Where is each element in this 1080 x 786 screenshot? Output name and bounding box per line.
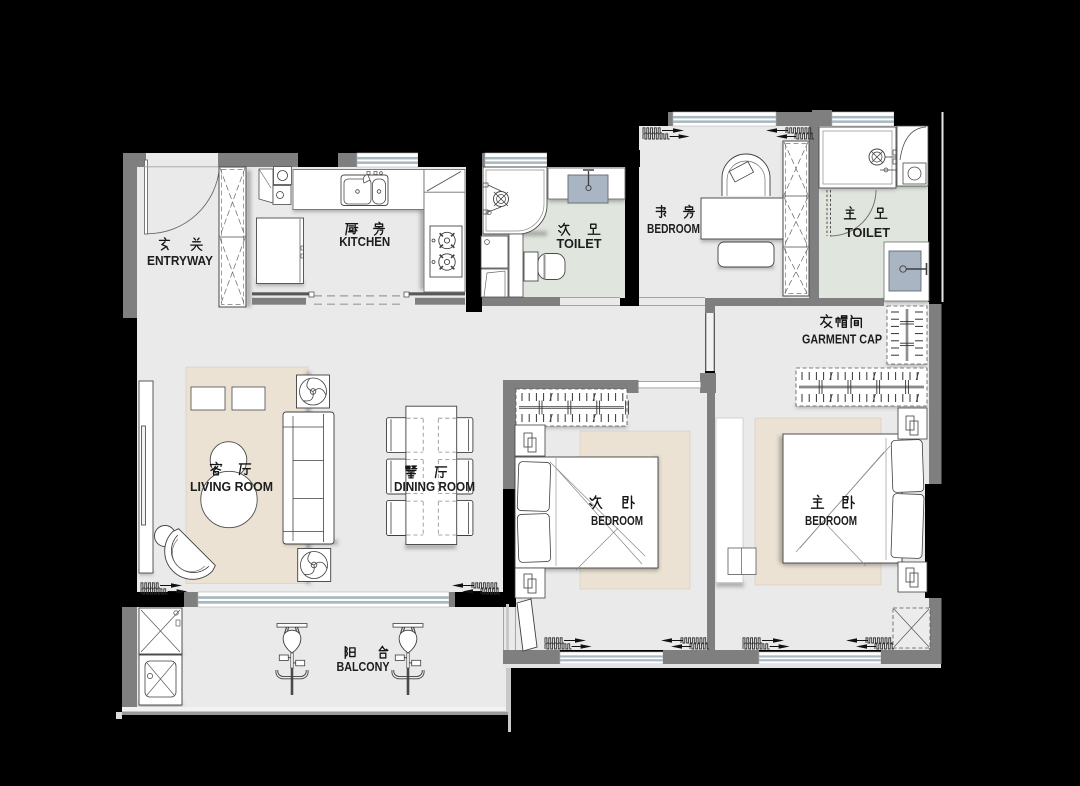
svg-text:BEDROOM: BEDROOM: [805, 514, 857, 528]
svg-text:KITCHEN: KITCHEN: [339, 235, 390, 249]
svg-text:ENTRYWAY: ENTRYWAY: [147, 254, 214, 268]
svg-text:TOILET: TOILET: [557, 237, 602, 251]
svg-text:BEDROOM: BEDROOM: [591, 514, 643, 528]
svg-text:DINING ROOM: DINING ROOM: [394, 480, 475, 494]
svg-text:BALCONY: BALCONY: [337, 660, 391, 674]
svg-text:TOILET: TOILET: [845, 226, 890, 240]
svg-text:LIVING ROOM: LIVING ROOM: [190, 480, 273, 494]
svg-text:GARMENT CAP: GARMENT CAP: [802, 333, 882, 347]
svg-text:BEDROOM: BEDROOM: [647, 222, 700, 236]
